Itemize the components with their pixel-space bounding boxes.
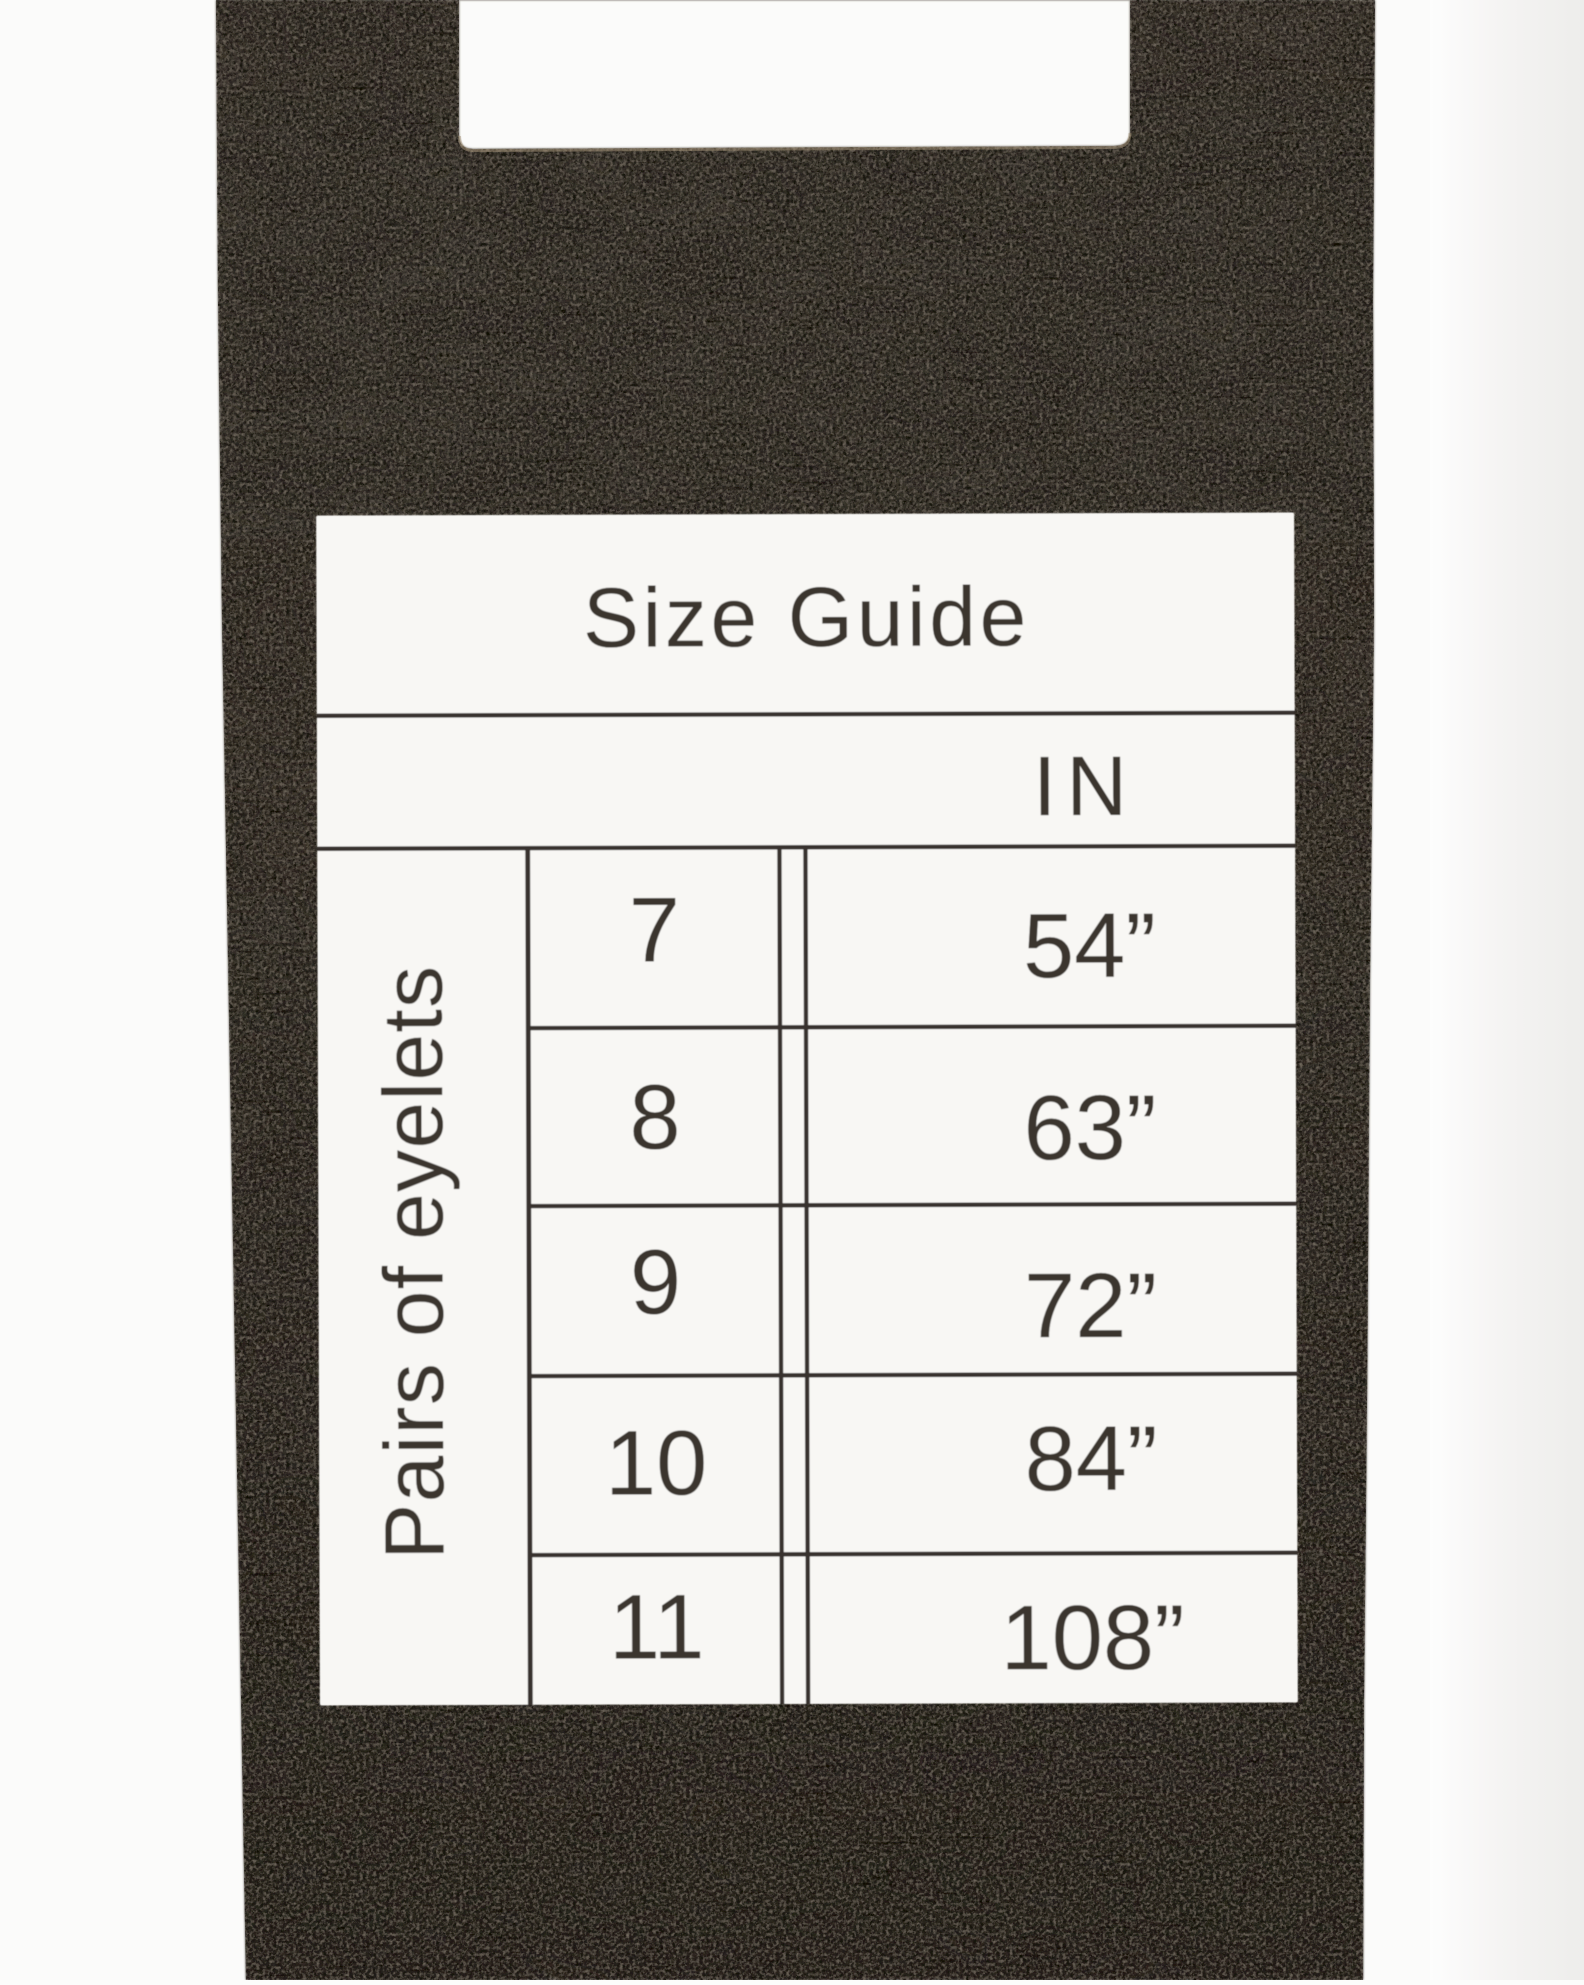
svg-text:9: 9 xyxy=(630,1231,681,1333)
svg-text:7: 7 xyxy=(629,879,680,981)
svg-text:IN: IN xyxy=(1033,739,1137,833)
svg-text:72”: 72” xyxy=(1024,1255,1157,1357)
svg-text:10: 10 xyxy=(605,1412,708,1514)
svg-text:84”: 84” xyxy=(1024,1408,1157,1510)
svg-text:54”: 54” xyxy=(1023,895,1156,997)
svg-text:63”: 63” xyxy=(1023,1077,1156,1179)
svg-text:11: 11 xyxy=(609,1576,705,1678)
svg-text:Size Guide: Size Guide xyxy=(583,569,1030,664)
svg-text:8: 8 xyxy=(629,1066,680,1168)
svg-text:Pairs of eyelets: Pairs of eyelets xyxy=(366,965,462,1560)
svg-text:108”: 108” xyxy=(1000,1587,1184,1690)
